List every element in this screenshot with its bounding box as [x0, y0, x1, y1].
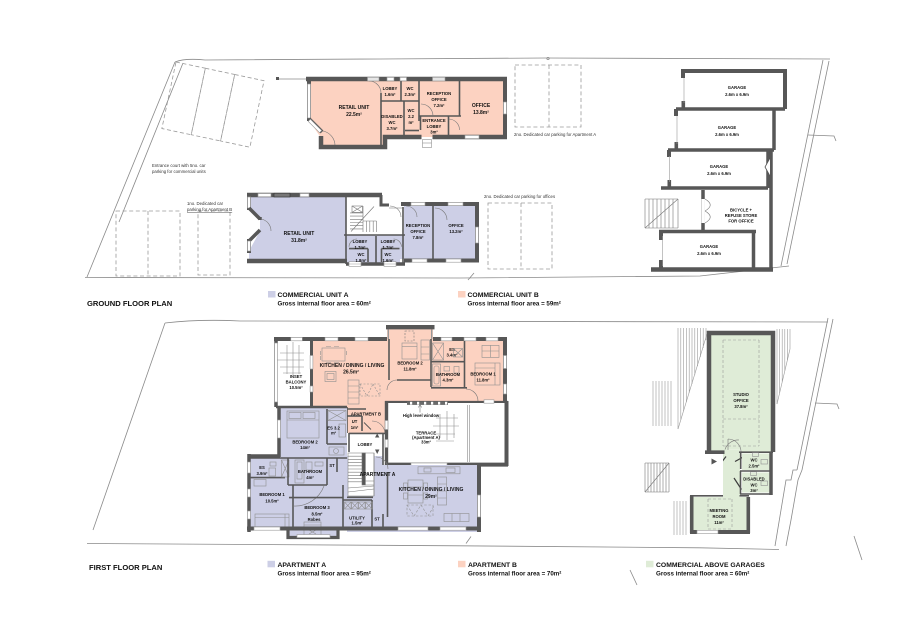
- svg-text:DISABLED: DISABLED: [381, 114, 402, 119]
- svg-text:8.5m²: 8.5m²: [312, 512, 324, 517]
- svg-text:OFFICE: OFFICE: [472, 103, 491, 109]
- svg-text:BEDROOM 2: BEDROOM 2: [397, 361, 423, 366]
- svg-text:3m²: 3m²: [430, 130, 438, 135]
- svg-text:APARTMENT A: APARTMENT A: [360, 472, 396, 478]
- svg-text:GARAGE: GARAGE: [728, 85, 747, 90]
- svg-text:BEDROOM 1: BEDROOM 1: [470, 372, 496, 377]
- svg-text:GARAGE: GARAGE: [710, 164, 729, 169]
- svg-text:RETAIL UNIT: RETAIL UNIT: [339, 105, 370, 111]
- svg-text:10.5m²: 10.5m²: [265, 499, 279, 504]
- svg-text:1.5m²: 1.5m²: [352, 521, 364, 526]
- svg-text:4.3m²: 4.3m²: [443, 378, 455, 383]
- svg-text:GARAGE: GARAGE: [718, 125, 737, 130]
- svg-text:WC: WC: [358, 252, 365, 257]
- svg-text:WC: WC: [751, 483, 758, 488]
- svg-text:2.3m²: 2.3m²: [405, 92, 417, 97]
- svg-text:APARTMENT B: APARTMENT B: [468, 562, 517, 569]
- svg-text:FOR OFFICE: FOR OFFICE: [728, 219, 754, 224]
- svg-text:REFUSE STORE: REFUSE STORE: [725, 213, 758, 218]
- svg-text:BALCONY: BALCONY: [286, 380, 307, 385]
- svg-text:WC: WC: [751, 458, 758, 463]
- svg-text:2.6m x 6.9m: 2.6m x 6.9m: [725, 92, 749, 97]
- svg-text:Entrance court with 5no. car: Entrance court with 5no. car: [152, 163, 206, 168]
- svg-text:LOBBY: LOBBY: [427, 124, 442, 129]
- svg-text:WC: WC: [407, 86, 414, 91]
- svg-text:GROUND FLOOR PLAN: GROUND FLOOR PLAN: [87, 299, 172, 308]
- svg-text:ENTRANCE: ENTRANCE: [422, 118, 445, 123]
- svg-text:3m²: 3m²: [750, 488, 758, 493]
- svg-text:LOBBY: LOBBY: [383, 86, 398, 91]
- svg-text:2.6m x 6.9m: 2.6m x 6.9m: [715, 132, 739, 137]
- svg-text:RETAIL UNIT: RETAIL UNIT: [284, 231, 315, 237]
- svg-text:KITCHEN / DINING / LIVING: KITCHEN / DINING / LIVING: [320, 363, 385, 369]
- svg-text:1no. Dedicated car: 1no. Dedicated car: [187, 201, 224, 206]
- svg-text:2no. Dedicated car parking for: 2no. Dedicated car parking for Apartment…: [514, 132, 596, 137]
- svg-text:1.7m²: 1.7m²: [383, 245, 395, 250]
- svg-text:11.8m²: 11.8m²: [476, 378, 490, 383]
- svg-text:33m²: 33m²: [421, 440, 431, 445]
- svg-text:2.6m x 6.9m: 2.6m x 6.9m: [707, 171, 731, 176]
- svg-text:UT: UT: [352, 419, 358, 424]
- svg-text:m²: m²: [331, 431, 337, 436]
- svg-text:BEDROOM 3: BEDROOM 3: [304, 505, 330, 510]
- svg-text:10.5m²: 10.5m²: [289, 385, 303, 390]
- svg-text:RECEPTION: RECEPTION: [406, 223, 430, 228]
- svg-text:22.5m²: 22.5m²: [346, 112, 362, 118]
- svg-text:2.6m x 6.9m: 2.6m x 6.9m: [697, 251, 721, 256]
- svg-text:BATHROOM: BATHROOM: [298, 469, 323, 474]
- svg-text:WC: WC: [408, 108, 415, 113]
- svg-text:14m²: 14m²: [300, 445, 310, 450]
- svg-text:OFFICE: OFFICE: [448, 223, 464, 228]
- svg-text:RECEPTION: RECEPTION: [427, 91, 451, 96]
- svg-text:2.2: 2.2: [408, 114, 414, 119]
- svg-text:3.9m²: 3.9m²: [257, 471, 269, 476]
- svg-text:1.6m²: 1.6m²: [385, 92, 397, 97]
- svg-text:11.8m²: 11.8m²: [403, 367, 417, 372]
- svg-text:ES: ES: [259, 465, 265, 470]
- svg-text:37.8m²: 37.8m²: [734, 404, 748, 409]
- svg-text:OFFICE: OFFICE: [410, 229, 426, 234]
- svg-text:Gross internal floor area = 70: Gross internal floor area = 70m²: [468, 570, 561, 577]
- svg-text:FIRST FLOOR PLAN: FIRST FLOOR PLAN: [89, 563, 162, 572]
- svg-text:1.7m²: 1.7m²: [355, 245, 367, 250]
- svg-text:26.5m²: 26.5m²: [343, 370, 359, 376]
- svg-text:29m²: 29m²: [425, 494, 437, 500]
- svg-text:LOBBY: LOBBY: [353, 239, 368, 244]
- svg-text:APARTMENT B: APARTMENT B: [351, 412, 381, 417]
- svg-text:APARTMENT A: APARTMENT A: [278, 562, 327, 569]
- svg-text:4m²: 4m²: [306, 475, 314, 480]
- svg-text:1.6m²: 1.6m²: [383, 258, 395, 263]
- svg-text:Gross internal floor area = 59: Gross internal floor area = 59m²: [468, 301, 561, 308]
- svg-text:13.2m²: 13.2m²: [449, 229, 463, 234]
- svg-text:COMMERCIAL UNIT B: COMMERCIAL UNIT B: [468, 292, 539, 299]
- svg-text:7.8m²: 7.8m²: [413, 235, 425, 240]
- svg-text:3.7m²: 3.7m²: [387, 126, 399, 131]
- svg-text:2.5m²: 2.5m²: [749, 464, 761, 469]
- svg-text:COMMERCIAL ABOVE GARAGES: COMMERCIAL ABOVE GARAGES: [656, 562, 765, 569]
- svg-text:BEDROOM 1: BEDROOM 1: [259, 492, 285, 497]
- svg-text:LOBBY: LOBBY: [358, 442, 373, 447]
- svg-text:31.8m²: 31.8m²: [291, 238, 307, 244]
- svg-text:parking for commercial units: parking for commercial units: [152, 169, 206, 174]
- svg-text:Gross internal floor area = 95: Gross internal floor area = 95m²: [278, 570, 371, 577]
- svg-text:1m²: 1m²: [351, 425, 359, 430]
- svg-text:OFFICE: OFFICE: [733, 398, 749, 403]
- svg-text:BATHROOM: BATHROOM: [436, 372, 461, 377]
- svg-text:2no. Dedicated car parking for: 2no. Dedicated car parking for offices: [484, 194, 555, 199]
- svg-text:m²: m²: [408, 120, 414, 125]
- svg-text:MEETING: MEETING: [709, 508, 728, 513]
- svg-text:ST: ST: [374, 517, 380, 522]
- svg-text:WC: WC: [385, 252, 392, 257]
- svg-text:Gross internal floor area = 60: Gross internal floor area = 60m²: [656, 570, 749, 577]
- svg-text:7.2m²: 7.2m²: [434, 103, 446, 108]
- svg-text:High level window: High level window: [403, 413, 440, 418]
- svg-text:Gross internal floor area = 60: Gross internal floor area = 60m²: [278, 301, 371, 308]
- svg-text:BEDROOM 2: BEDROOM 2: [292, 440, 318, 445]
- svg-text:DISABLED: DISABLED: [743, 477, 764, 482]
- svg-text:INSET: INSET: [290, 374, 303, 379]
- svg-text:OFFICE: OFFICE: [431, 97, 447, 102]
- svg-text:Robes: Robes: [308, 517, 321, 522]
- svg-text:parking for Apartment B: parking for Apartment B: [187, 207, 232, 212]
- svg-text:LOBBY: LOBBY: [381, 239, 396, 244]
- svg-text:COMMERCIAL UNIT A: COMMERCIAL UNIT A: [278, 292, 349, 299]
- svg-text:GARAGE: GARAGE: [700, 244, 719, 249]
- svg-text:WC: WC: [389, 120, 396, 125]
- svg-text:BICYCLE +: BICYCLE +: [730, 208, 753, 213]
- svg-text:ROOM: ROOM: [712, 514, 726, 519]
- svg-text:ST: ST: [329, 463, 335, 468]
- svg-text:STUDIO: STUDIO: [733, 392, 750, 397]
- svg-text:1.8m²: 1.8m²: [356, 258, 368, 263]
- svg-text:KITCHEN / DINING / LIVING: KITCHEN / DINING / LIVING: [399, 487, 464, 493]
- svg-text:13.8m²: 13.8m²: [473, 110, 489, 116]
- svg-text:11m²: 11m²: [714, 520, 724, 525]
